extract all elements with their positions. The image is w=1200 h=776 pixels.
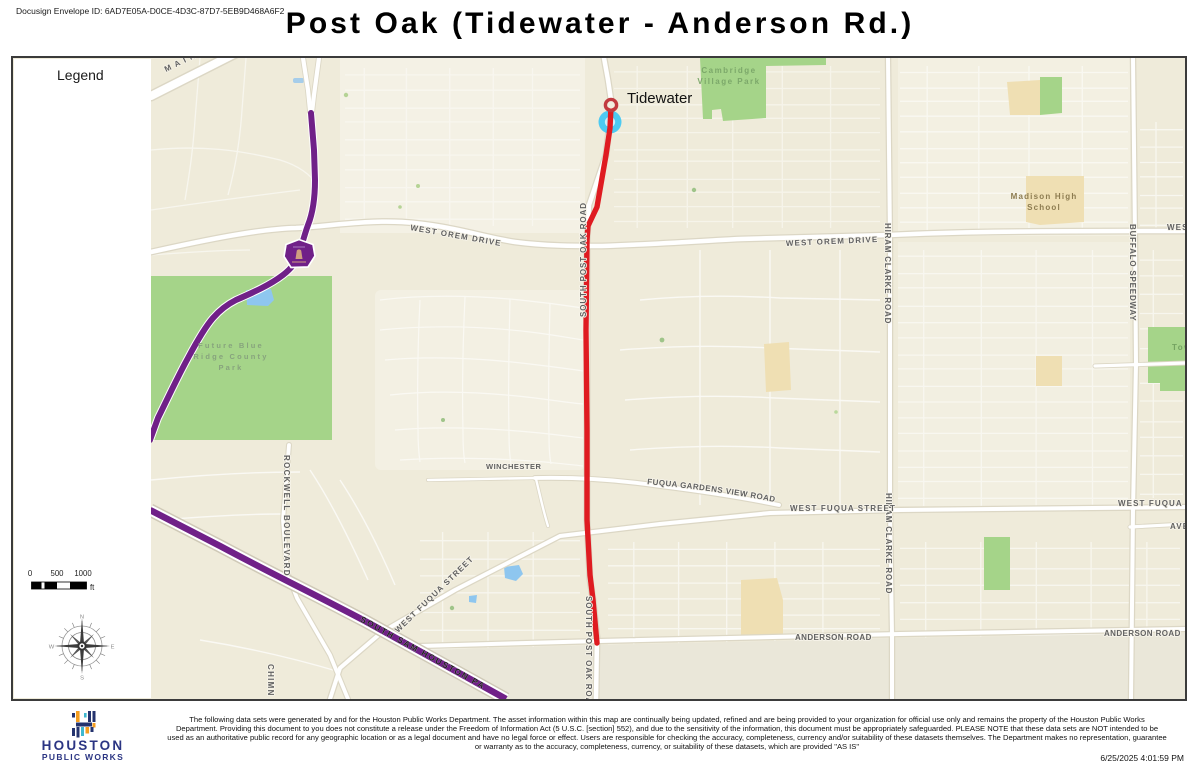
svg-text:Tidewater: Tidewater — [627, 90, 692, 107]
svg-text:CHIMN: CHIMN — [266, 664, 275, 697]
svg-text:Future Blue: Future Blue — [198, 341, 264, 350]
svg-text:WEST FUQUA S: WEST FUQUA S — [1118, 499, 1185, 508]
svg-text:AVE: AVE — [1170, 522, 1185, 531]
svg-text:S: S — [80, 676, 84, 682]
svg-text:500: 500 — [50, 569, 64, 578]
svg-text:0: 0 — [28, 569, 33, 578]
svg-text:Ridge County: Ridge County — [193, 352, 268, 361]
svg-text:ROCKWELL BOULEVARD: ROCKWELL BOULEVARD — [282, 455, 291, 577]
svg-text:HIRAM CLARKE ROAD: HIRAM CLARKE ROAD — [883, 223, 892, 324]
svg-text:Tow: Tow — [1172, 343, 1185, 352]
svg-text:Madison High: Madison High — [1011, 192, 1078, 201]
svg-text:E: E — [111, 645, 115, 651]
svg-text:N: N — [80, 615, 84, 621]
svg-text:WINCHESTER: WINCHESTER — [486, 462, 542, 471]
svg-text:SOUTH POST OAK ROAD: SOUTH POST OAK ROAD — [584, 596, 593, 699]
svg-text:ANDERSON ROAD: ANDERSON ROAD — [795, 633, 872, 642]
svg-text:Village Park: Village Park — [697, 77, 760, 86]
svg-text:1000: 1000 — [74, 569, 92, 578]
svg-text:WEST: WEST — [1167, 223, 1185, 232]
svg-text:School: School — [1027, 203, 1061, 212]
svg-text:W: W — [49, 645, 55, 651]
svg-text:BUFFALO SPEEDWAY: BUFFALO SPEEDWAY — [1128, 224, 1137, 321]
svg-text:Park: Park — [218, 363, 243, 372]
svg-text:ANDERSON ROAD: ANDERSON ROAD — [1104, 629, 1181, 638]
svg-text:Cambridge: Cambridge — [701, 66, 756, 75]
svg-text:WEST FUQUA STREET: WEST FUQUA STREET — [790, 504, 896, 513]
svg-text:SOUTH POST OAK ROAD: SOUTH POST OAK ROAD — [579, 202, 588, 317]
